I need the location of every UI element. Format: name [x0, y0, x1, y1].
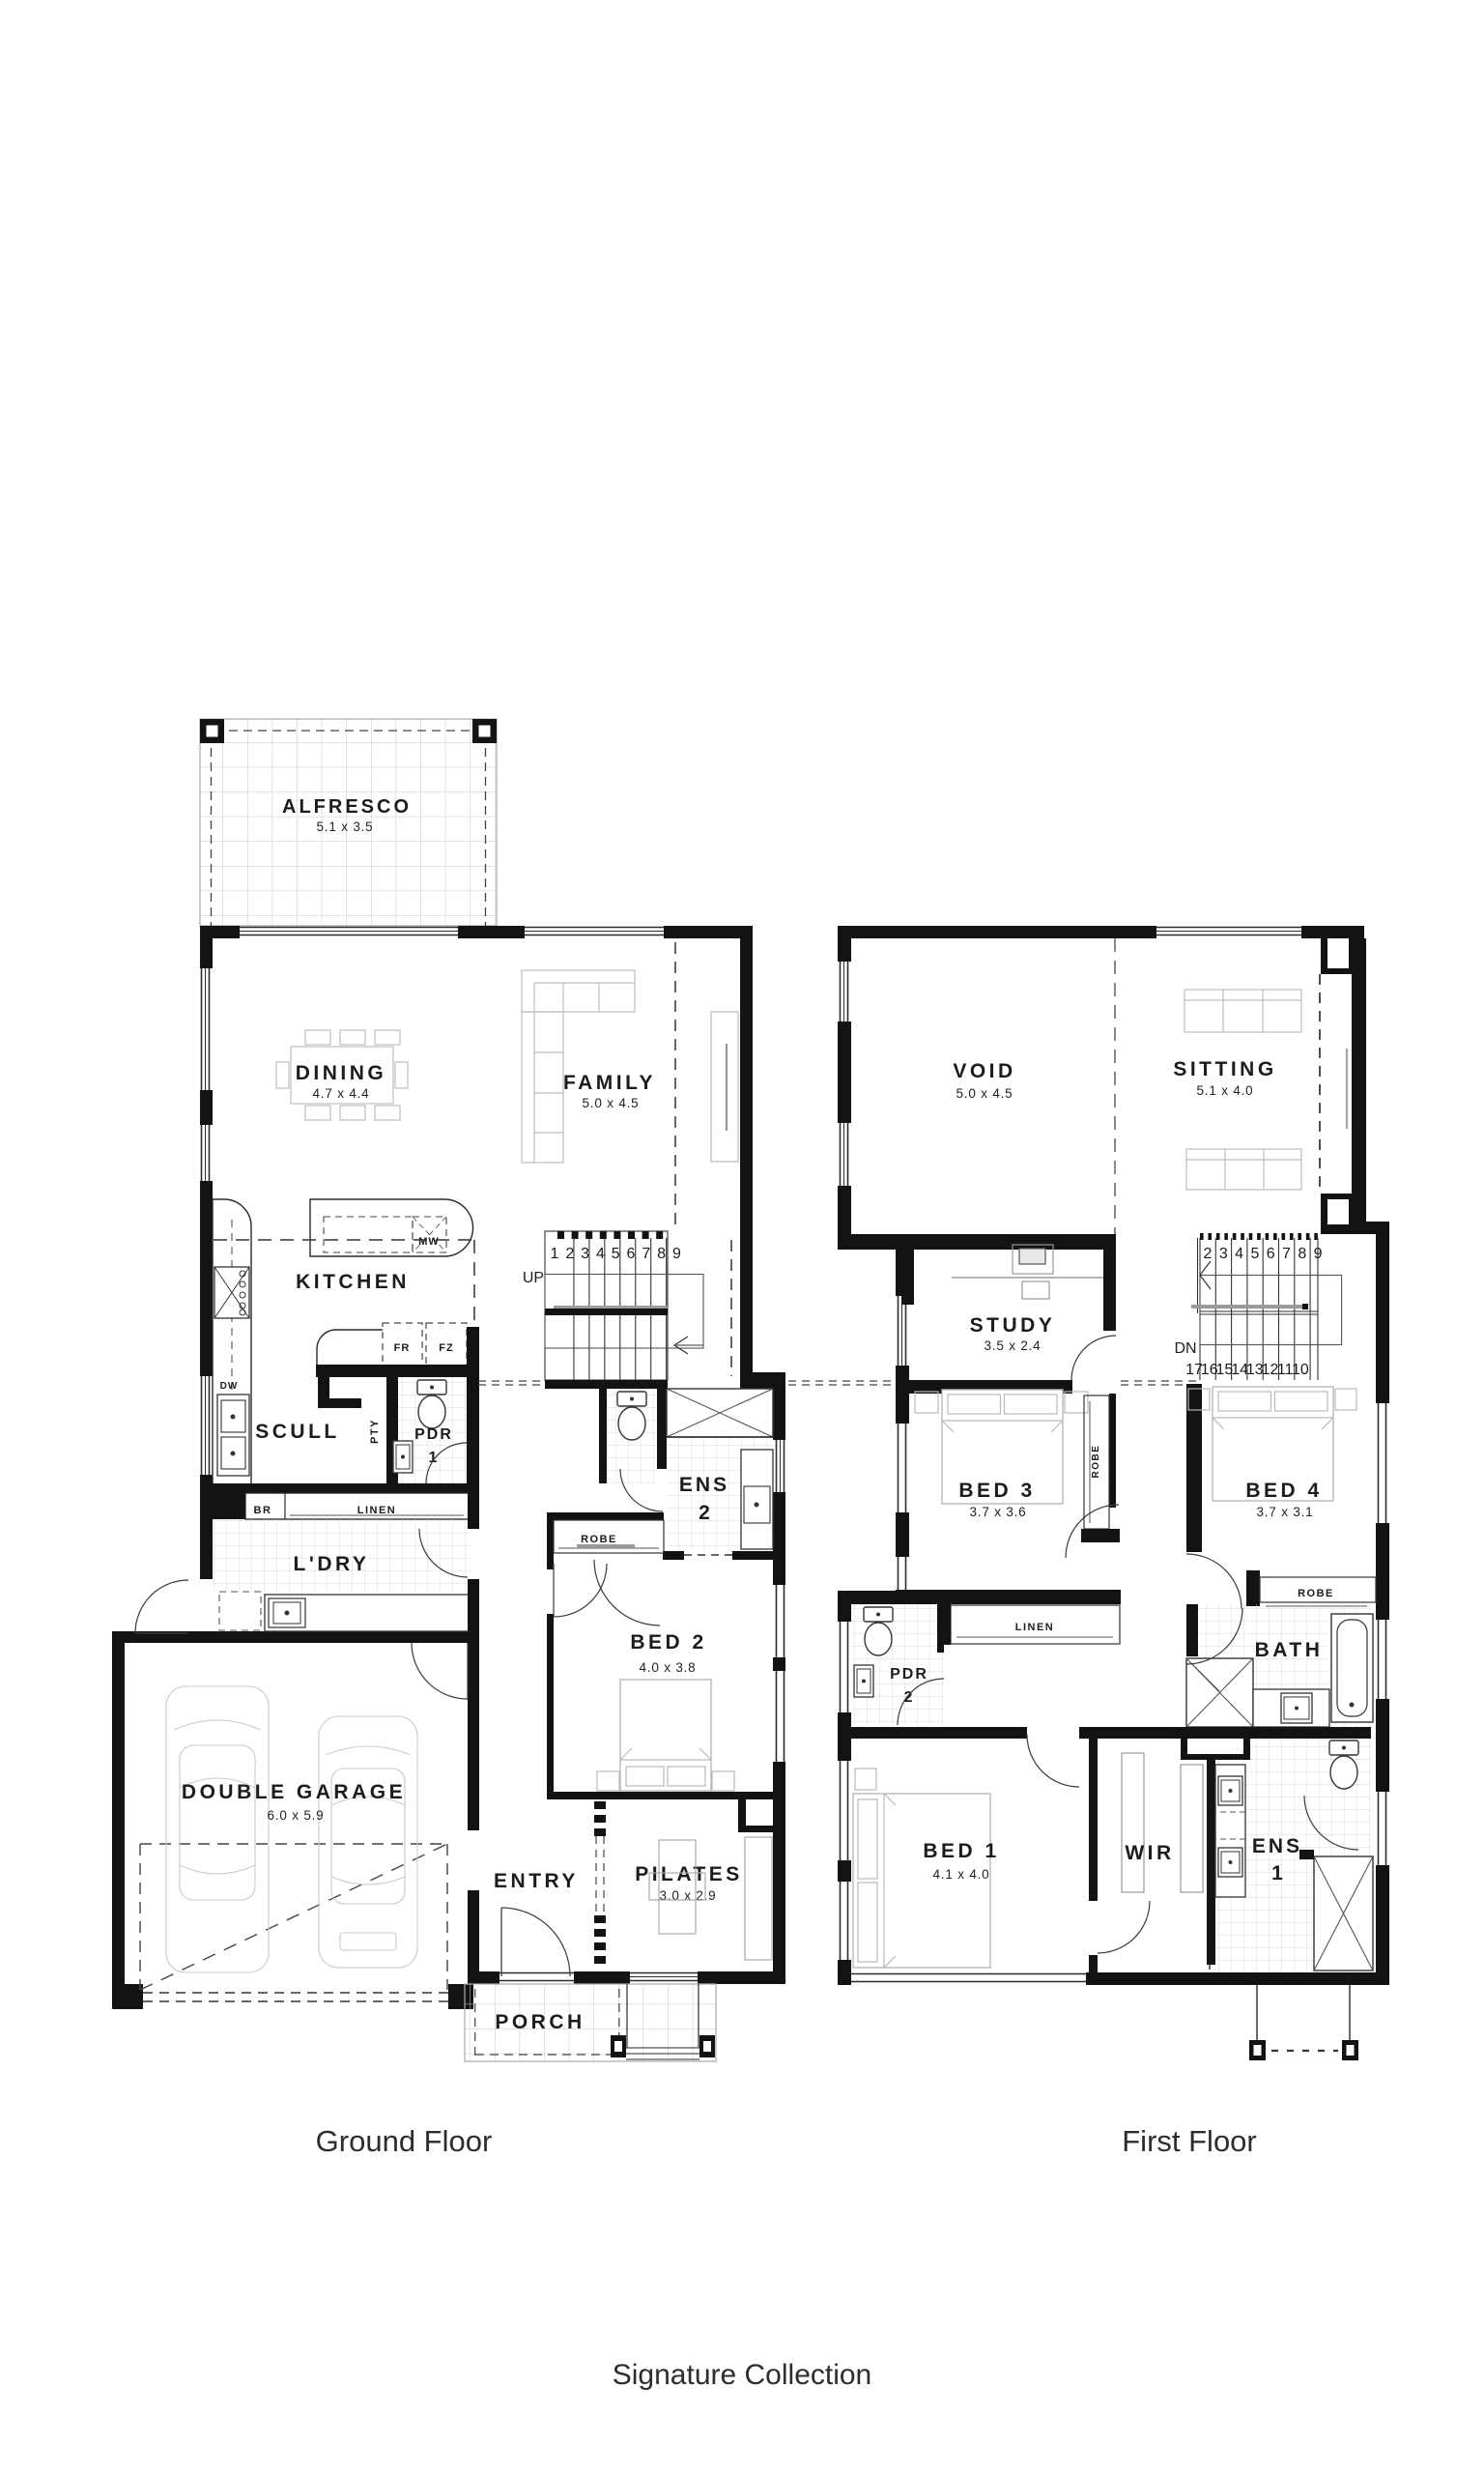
svg-text:DOUBLE GARAGE: DOUBLE GARAGE	[182, 1781, 406, 1803]
svg-text:ROBE: ROBE	[1091, 1445, 1101, 1479]
svg-text:SITTING: SITTING	[1173, 1058, 1276, 1080]
svg-text:2: 2	[904, 1689, 915, 1706]
svg-text:5: 5	[612, 1246, 620, 1262]
svg-text:5.1 x 4.0: 5.1 x 4.0	[1197, 1083, 1254, 1098]
svg-text:MW: MW	[418, 1236, 440, 1248]
svg-text:BED 3: BED 3	[958, 1480, 1035, 1502]
svg-text:LINEN: LINEN	[357, 1505, 397, 1516]
svg-text:12: 12	[1262, 1362, 1279, 1378]
svg-text:BED 2: BED 2	[630, 1631, 706, 1654]
svg-text:9: 9	[672, 1246, 681, 1262]
svg-text:BR: BR	[254, 1505, 272, 1516]
svg-text:BATH: BATH	[1255, 1639, 1324, 1661]
svg-text:5.0 x 4.5: 5.0 x 4.5	[956, 1086, 1013, 1101]
svg-text:6.0 x 5.9: 6.0 x 5.9	[268, 1808, 325, 1823]
svg-text:6: 6	[1267, 1246, 1275, 1262]
svg-text:First Floor: First Floor	[1122, 2124, 1257, 2158]
svg-text:3.5 x 2.4: 3.5 x 2.4	[985, 1338, 1042, 1353]
svg-text:7: 7	[1282, 1246, 1291, 1262]
svg-text:2: 2	[699, 1502, 710, 1524]
svg-text:3.7 x 3.6: 3.7 x 3.6	[970, 1505, 1027, 1519]
svg-text:ALFRESCO: ALFRESCO	[282, 796, 412, 818]
svg-text:1: 1	[429, 1450, 440, 1466]
svg-text:ROBE: ROBE	[1298, 1588, 1334, 1599]
svg-text:9: 9	[1314, 1246, 1323, 1262]
svg-text:STUDY: STUDY	[970, 1314, 1056, 1337]
svg-text:LINEN: LINEN	[1015, 1622, 1055, 1633]
svg-text:PDR: PDR	[414, 1426, 453, 1443]
svg-text:PTY: PTY	[369, 1419, 381, 1444]
svg-text:Ground Floor: Ground Floor	[316, 2124, 493, 2158]
svg-text:ENTRY: ENTRY	[494, 1870, 579, 1892]
svg-text:4.1 x 4.0: 4.1 x 4.0	[933, 1867, 990, 1882]
svg-text:FR: FR	[394, 1342, 411, 1354]
svg-text:FZ: FZ	[439, 1342, 453, 1354]
svg-text:4.7 x 4.4: 4.7 x 4.4	[313, 1086, 370, 1101]
svg-text:SCULL: SCULL	[255, 1421, 340, 1443]
svg-text:4.0 x 3.8: 4.0 x 3.8	[640, 1660, 697, 1675]
svg-text:L'DRY: L'DRY	[294, 1553, 370, 1575]
svg-text:6: 6	[627, 1246, 636, 1262]
svg-text:DN: DN	[1174, 1340, 1196, 1357]
svg-text:5.1 x 3.5: 5.1 x 3.5	[317, 820, 374, 834]
svg-text:7: 7	[642, 1246, 650, 1262]
svg-text:ENS: ENS	[1252, 1835, 1302, 1857]
svg-text:FAMILY: FAMILY	[563, 1072, 656, 1094]
svg-text:DINING: DINING	[296, 1062, 387, 1084]
svg-text:UP: UP	[523, 1270, 544, 1286]
svg-text:BED 4: BED 4	[1245, 1480, 1322, 1502]
svg-text:5.0 x 4.5: 5.0 x 4.5	[583, 1096, 640, 1110]
svg-text:5: 5	[1250, 1246, 1259, 1262]
svg-text:Signature Collection: Signature Collection	[613, 2359, 872, 2391]
svg-text:PILATES: PILATES	[635, 1863, 743, 1885]
svg-text:WIR: WIR	[1125, 1842, 1174, 1864]
svg-text:BED 1: BED 1	[923, 1840, 999, 1862]
svg-text:VOID: VOID	[953, 1060, 1015, 1082]
svg-text:ROBE: ROBE	[581, 1534, 617, 1545]
svg-text:2: 2	[565, 1246, 574, 1262]
svg-text:4: 4	[596, 1246, 605, 1262]
svg-text:PDR: PDR	[890, 1666, 928, 1683]
svg-text:1: 1	[1271, 1862, 1283, 1884]
svg-text:PORCH: PORCH	[495, 2011, 585, 2033]
svg-text:ENS: ENS	[679, 1474, 729, 1496]
svg-text:3.0 x 2.9: 3.0 x 2.9	[660, 1888, 717, 1903]
svg-text:3: 3	[1219, 1246, 1228, 1262]
svg-text:8: 8	[657, 1246, 666, 1262]
svg-text:4: 4	[1235, 1246, 1243, 1262]
svg-text:KITCHEN: KITCHEN	[296, 1271, 410, 1293]
svg-text:8: 8	[1298, 1246, 1306, 1262]
svg-text:1: 1	[551, 1246, 559, 1262]
svg-text:3.7 x 3.1: 3.7 x 3.1	[1257, 1505, 1314, 1519]
svg-text:2: 2	[1204, 1246, 1213, 1262]
svg-text:DW: DW	[220, 1381, 239, 1392]
svg-text:10: 10	[1292, 1362, 1309, 1378]
svg-text:3: 3	[581, 1246, 589, 1262]
